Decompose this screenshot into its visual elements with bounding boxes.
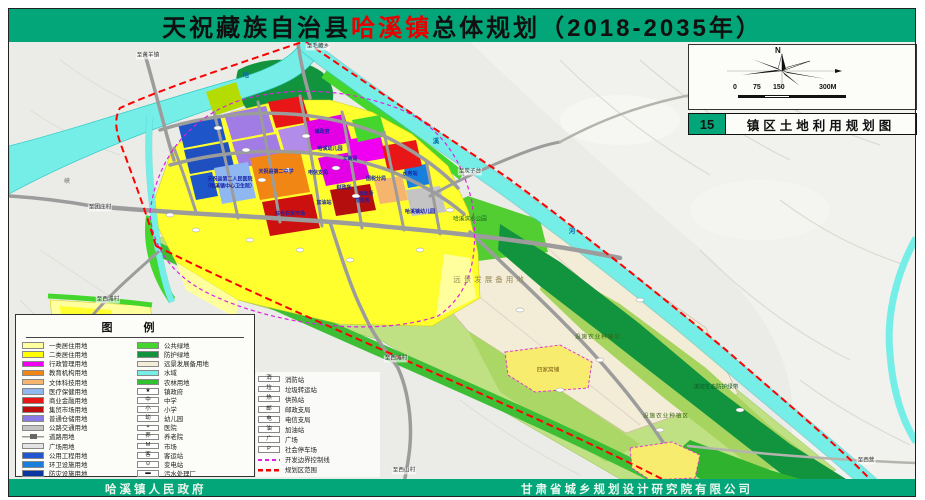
map-label: 河 — [569, 228, 576, 236]
legend-label: 普通仓储用地 — [49, 414, 87, 423]
legend-label: 教育机构用地 — [49, 368, 87, 377]
footer-institute: 甘肃省城乡规划设计研究院有限公司 — [521, 481, 753, 497]
map-label: 加油站 — [316, 200, 331, 207]
legend-label: 二类居住用地 — [49, 350, 87, 359]
legend-item: ▬ 污水处理厂 — [137, 469, 248, 478]
legend-label: 广场用地 — [49, 442, 75, 451]
legend-item: 中 中学 — [137, 396, 248, 405]
legend-label: 公共绿地 — [164, 341, 190, 350]
scale-segment — [738, 95, 764, 98]
legend-swatch — [137, 351, 159, 358]
legend-item: 消 消防站 — [258, 374, 378, 384]
map-label: 设施农业种植区 — [575, 334, 621, 341]
legend-swatch — [22, 370, 44, 377]
map-label: 国税分局 — [366, 176, 386, 183]
legend-label: 养老院 — [164, 432, 183, 441]
scale-tick-label: 0 — [733, 84, 737, 91]
legend-column-3: 消 消防站 垃 垃圾转运站 热 供热站 邮 邮政支局 电 电信支局 — [256, 372, 380, 477]
map-label: 财政所 — [336, 185, 351, 192]
planning-poster: 至黄羊镇 至毛藏乡 至炭子台 至团庄村 至西滩村 至西滩村 至西山村 至西营 峡… — [0, 0, 925, 500]
scale-segment — [764, 95, 790, 98]
legend-item: + 医院 — [137, 423, 248, 432]
legend-swatch: ⊙ — [137, 461, 159, 468]
legend-column-1: 一类居住用地 二类居住用地 行政管理用地 教育机构用地 — [22, 341, 133, 478]
legend-item: 油 加油站 — [258, 424, 378, 434]
legend-swatch — [137, 342, 159, 349]
legend-swatch: P — [258, 446, 280, 453]
scale-tick-label: 300M — [819, 84, 837, 91]
legend-item: P 社会停车场 — [258, 445, 378, 455]
legend-item: 二类居住用地 — [22, 350, 133, 359]
legend-label: 公路交通用地 — [49, 423, 87, 432]
legend-swatch — [22, 379, 44, 386]
legend-label: 供热站 — [285, 395, 304, 404]
map-label: 至炭子台 — [458, 168, 482, 175]
scale-tick-label: 75 — [753, 84, 761, 91]
legend-label: 文体科技用地 — [49, 378, 87, 387]
legend-item: 邮 邮政支局 — [258, 404, 378, 414]
legend-item: 小 小学 — [137, 405, 248, 414]
title-bar: 天祝藏族自治县哈溪镇总体规划（2018-2035年） — [9, 9, 916, 42]
map-index-name: 镇区土地利用规划图 — [726, 113, 917, 135]
legend-item: 幼 幼儿园 — [137, 414, 248, 423]
legend-item: 规划区范围 — [258, 465, 378, 475]
legend-swatch — [137, 379, 159, 386]
map-label: 至黄羊镇 — [136, 52, 160, 59]
legend-item: 防灾设施用地 — [22, 469, 133, 478]
legend-label: 农林用地 — [164, 378, 190, 387]
legend-swatch — [22, 425, 44, 432]
map-label: 哈溪幼儿园 — [317, 146, 342, 153]
map-label: 派出所 — [358, 191, 373, 198]
legend-label: 电信支局 — [285, 415, 311, 424]
map-label: 哈 — [243, 72, 250, 80]
legend-swatch: 电 — [258, 416, 280, 423]
legend-label: 环卫设施用地 — [49, 460, 87, 469]
title-prefix: 天祝藏族自治县 — [162, 8, 351, 43]
footer-bar: 哈溪镇人民政府 甘肃省城乡规划设计研究院有限公司 — [9, 479, 916, 496]
footer-government: 哈溪镇人民政府 — [105, 481, 207, 497]
legend-label: 加油站 — [285, 425, 304, 434]
legend-swatch — [22, 470, 44, 477]
map-label: 至西滩村 — [384, 355, 408, 362]
legend-label: 市场 — [164, 442, 177, 451]
legend-item: ⊙ 变电站 — [137, 460, 248, 469]
scale-tick-label: 150 — [773, 84, 785, 91]
legend-label: 防护绿地 — [164, 350, 190, 359]
legend-swatch — [22, 342, 44, 349]
legend-swatch — [22, 443, 44, 450]
map-label: 至团庄村 — [88, 204, 112, 211]
legend-item: 商业金融用地 — [22, 396, 133, 405]
legend-swatch — [22, 406, 44, 413]
legend-swatch: 垃 — [258, 386, 280, 393]
map-label: 司法所 — [354, 198, 369, 205]
legend-swatch — [137, 361, 159, 368]
legend-column-2: 公共绿地 防护绿地 远景发展备用地 水域 — [137, 341, 248, 478]
legend-item: 广场用地 — [22, 442, 133, 451]
map-label: 镇政府 — [314, 129, 329, 136]
map-label: 水务站 — [402, 171, 417, 178]
legend-label: 污水处理厂 — [164, 469, 196, 478]
legend-swatch: M — [137, 443, 159, 450]
legend-panel: 图 例 一类居住用地 二类居住用地 行政管理用地 — [15, 314, 255, 477]
legend-item: 公共绿地 — [137, 341, 248, 350]
legend-label: 医疗保健用地 — [49, 387, 87, 396]
legend-item: 行政管理用地 — [22, 359, 133, 368]
legend-swatch — [22, 388, 44, 395]
legend-swatch — [22, 461, 44, 468]
legend-label: 一类居住用地 — [49, 341, 87, 350]
legend-swatch — [22, 361, 44, 368]
legend-label: 开发边界控制线 — [285, 455, 330, 464]
legend-swatch — [258, 467, 280, 474]
legend-swatch: 幼 — [137, 415, 159, 422]
legend-columns: 一类居住用地 二类居住用地 行政管理用地 教育机构用地 — [22, 341, 248, 478]
legend-label: 远景发展备用地 — [164, 359, 209, 368]
map-index-strip: 15 镇区土地利用规划图 — [688, 113, 917, 135]
legend-item: 电 电信支局 — [258, 414, 378, 424]
legend-label: 社会停车场 — [285, 445, 317, 454]
legend-item: 普通仓储用地 — [22, 414, 133, 423]
legend-label: 镇政府 — [164, 387, 183, 396]
map-label: 峡 — [64, 179, 70, 187]
legend-item: 环卫设施用地 — [22, 460, 133, 469]
map-label: 滨河生态防护绿带 — [694, 384, 739, 391]
map-index-number: 15 — [688, 113, 726, 135]
legend-item: ★ 镇政府 — [137, 387, 248, 396]
legend-swatch: + — [137, 425, 159, 432]
legend-label: 幼儿园 — [164, 414, 183, 423]
legend-item: 一类居住用地 — [22, 341, 133, 350]
map-label: 电信支局 — [308, 170, 328, 177]
map-label: 综合农贸市场 — [275, 211, 305, 218]
scale-ticks: 075150300M — [689, 84, 918, 93]
legend-swatch — [22, 452, 44, 459]
map-label: 哈溪滨水公园 — [453, 216, 487, 223]
legend-label: 水域 — [164, 368, 177, 377]
legend-swatch: 小 — [137, 406, 159, 413]
legend-label: 道路用地 — [49, 432, 75, 441]
legend-swatch — [22, 351, 44, 358]
legend-item: 广 广场 — [258, 435, 378, 445]
legend-item: 农林用地 — [137, 378, 248, 387]
legend-swatch: ▬ — [137, 470, 159, 477]
legend-label: 行政管理用地 — [49, 359, 87, 368]
legend-item: 道路用地 — [22, 432, 133, 441]
legend-swatch — [258, 457, 280, 464]
legend-title: 图 例 — [26, 319, 244, 338]
legend-label: 消防站 — [285, 375, 304, 384]
legend-label: 小学 — [164, 405, 177, 414]
legend-swatch: 广 — [258, 436, 280, 443]
legend-item: 远景发展备用地 — [137, 359, 248, 368]
map-label: 工商局 — [342, 156, 357, 163]
legend-label: 垃圾转运站 — [285, 385, 317, 394]
scale-bar — [738, 95, 846, 98]
legend-item: 防护绿地 — [137, 350, 248, 359]
legend-label: 规划区范围 — [285, 465, 317, 474]
legend-swatch — [22, 397, 44, 404]
legend-swatch: 养 — [137, 434, 159, 441]
map-label: 至毛藏乡 — [306, 43, 330, 50]
legend-label: 邮政支局 — [285, 405, 311, 414]
map-label: 溪 — [433, 138, 440, 146]
legend-item: 医疗保健用地 — [22, 387, 133, 396]
map-label: 天祝县第二中学 — [258, 169, 293, 176]
legend-swatch — [22, 415, 44, 422]
legend-label: 集贸市场用地 — [49, 405, 87, 414]
legend-item: 垃 垃圾转运站 — [258, 384, 378, 394]
north-scale-panel: N 075150300M — [688, 44, 917, 110]
legend-item: 集贸市场用地 — [22, 405, 133, 414]
title-highlight: 哈溪镇 — [351, 8, 432, 43]
legend-swatch — [137, 370, 159, 377]
map-label: 远景发展备用地 — [453, 275, 527, 285]
legend-swatch: 热 — [258, 396, 280, 403]
legend-item: 文体科技用地 — [22, 378, 133, 387]
legend-label: 商业金融用地 — [49, 396, 87, 405]
legend-item: 养 养老院 — [137, 432, 248, 441]
legend-label: 广场 — [285, 435, 298, 444]
legend-label: 变电站 — [164, 460, 183, 469]
map-label: 天祝县第二人民医院 （哈溪镇中心卫生院） — [205, 177, 255, 190]
map-label: 至西营 — [857, 457, 876, 464]
legend-swatch: 邮 — [258, 406, 280, 413]
legend-item: M 市场 — [137, 442, 248, 451]
legend-label: 医院 — [164, 423, 177, 432]
legend-swatch — [22, 434, 44, 441]
legend-item: 公用工程用地 — [22, 451, 133, 460]
legend-item: 开发边界控制线 — [258, 455, 378, 465]
legend-item: 公路交通用地 — [22, 423, 133, 432]
legend-label: 客运站 — [164, 451, 183, 460]
legend-label: 中学 — [164, 396, 177, 405]
legend-item: 教育机构用地 — [22, 368, 133, 377]
legend-swatch: 油 — [258, 426, 280, 433]
legend-label: 公用工程用地 — [49, 451, 87, 460]
map-label: 四家窝铺 — [537, 367, 559, 374]
legend-item: 水域 — [137, 368, 248, 377]
legend-swatch: 中 — [137, 397, 159, 404]
legend-swatch: ★ — [137, 388, 159, 395]
title-suffix: 总体规划（2018-2035年） — [432, 8, 763, 43]
compass-rose-icon — [717, 51, 847, 87]
legend-item: 热 供热站 — [258, 394, 378, 404]
map-label: 设施农业种植区 — [643, 413, 689, 420]
legend-swatch: 消 — [258, 376, 280, 383]
legend-label: 防灾设施用地 — [49, 469, 87, 478]
map-label: 至西山村 — [392, 467, 416, 474]
legend-item: 客 客运站 — [137, 451, 248, 460]
scale-segment — [790, 95, 846, 98]
map-label: 至西滩村 — [96, 296, 120, 303]
legend-swatch: 客 — [137, 452, 159, 459]
map-label: 哈溪镇幼儿园 — [405, 209, 435, 216]
